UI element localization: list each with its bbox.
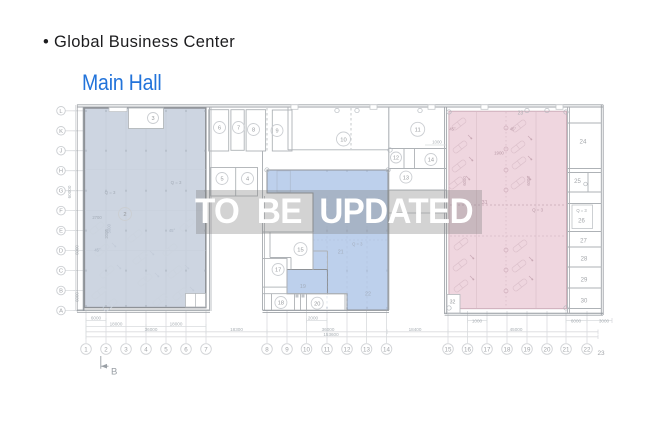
svg-text:8: 8: [252, 128, 255, 134]
svg-text:18: 18: [278, 301, 284, 307]
svg-text:2: 2: [104, 346, 108, 353]
svg-text:3: 3: [124, 346, 128, 353]
svg-text:4: 4: [246, 177, 249, 183]
svg-text:A: A: [59, 309, 63, 315]
svg-text:1: 1: [84, 346, 88, 353]
svg-text:153600: 153600: [323, 332, 339, 337]
svg-text:Q = 3: Q = 3: [105, 190, 116, 195]
svg-text:Q = 3: Q = 3: [352, 241, 363, 246]
svg-text:31: 31: [482, 200, 488, 206]
svg-text:11: 11: [324, 346, 331, 353]
svg-text:36000: 36000: [145, 327, 158, 332]
svg-text:9: 9: [275, 129, 278, 135]
svg-text:20: 20: [544, 346, 551, 353]
svg-text:15: 15: [445, 346, 452, 353]
svg-text:16: 16: [464, 346, 471, 353]
svg-text:26: 26: [578, 219, 585, 225]
svg-text:K: K: [59, 129, 63, 135]
svg-text:9: 9: [285, 346, 289, 353]
svg-text:Q = 3: Q = 3: [532, 208, 543, 213]
svg-text:19: 19: [300, 284, 306, 290]
svg-text:18300: 18300: [230, 327, 243, 332]
svg-text:F: F: [59, 209, 63, 215]
svg-text:24: 24: [580, 139, 587, 146]
svg-text:27: 27: [580, 239, 587, 245]
svg-text:6000: 6000: [91, 315, 102, 320]
svg-text:7: 7: [204, 346, 208, 353]
svg-text:Q = 3: Q = 3: [171, 180, 182, 185]
svg-text:19: 19: [524, 346, 531, 353]
svg-text:B: B: [111, 367, 117, 378]
svg-text:45°: 45°: [169, 228, 176, 233]
svg-text:2: 2: [123, 212, 126, 218]
svg-text:12: 12: [393, 156, 399, 162]
svg-text:13: 13: [363, 346, 370, 353]
svg-text:1900: 1900: [494, 151, 504, 156]
svg-text:5: 5: [220, 177, 223, 183]
svg-text:B: B: [59, 289, 63, 295]
svg-text:21: 21: [338, 250, 344, 256]
svg-text:7: 7: [237, 126, 240, 132]
svg-text:6: 6: [218, 126, 221, 132]
svg-text:29: 29: [581, 278, 588, 284]
svg-text:D: D: [59, 249, 63, 255]
svg-text:60000: 60000: [67, 185, 72, 198]
svg-text:3000: 3000: [599, 319, 610, 324]
svg-text:20: 20: [314, 301, 320, 307]
svg-text:23: 23: [518, 110, 524, 116]
svg-text:10: 10: [303, 346, 310, 353]
svg-text:45°: 45°: [449, 127, 456, 132]
svg-text:12: 12: [344, 346, 351, 353]
svg-text:3: 3: [151, 116, 154, 122]
svg-text:8: 8: [265, 346, 269, 353]
svg-text:11: 11: [415, 128, 421, 134]
svg-text:6: 6: [184, 346, 188, 353]
svg-text:6000: 6000: [526, 176, 531, 186]
svg-text:2000: 2000: [104, 229, 109, 239]
svg-text:5: 5: [164, 346, 168, 353]
svg-text:21: 21: [563, 346, 570, 353]
svg-text:45°: 45°: [510, 127, 517, 132]
svg-text:15: 15: [297, 247, 303, 253]
svg-text:J: J: [60, 149, 63, 155]
svg-text:32: 32: [450, 300, 456, 306]
svg-text:18: 18: [504, 346, 511, 353]
svg-text:18000: 18000: [110, 322, 123, 327]
svg-text:10: 10: [340, 137, 346, 143]
svg-text:14: 14: [428, 158, 434, 164]
svg-text:6000: 6000: [462, 176, 467, 186]
svg-text:H: H: [59, 169, 63, 175]
svg-text:Q = 3: Q = 3: [576, 208, 587, 213]
svg-text:13: 13: [403, 175, 409, 181]
svg-text:28: 28: [581, 257, 588, 263]
svg-text:45000: 45000: [510, 327, 523, 332]
svg-text:E: E: [59, 229, 63, 235]
svg-text:C: C: [59, 269, 63, 275]
svg-text:30: 30: [581, 299, 588, 305]
svg-text:6000: 6000: [571, 319, 582, 324]
svg-text:18400: 18400: [409, 327, 422, 332]
svg-text:14: 14: [383, 346, 390, 353]
svg-text:1000: 1000: [472, 319, 483, 324]
svg-text:45°: 45°: [94, 248, 101, 253]
svg-text:18000: 18000: [170, 322, 183, 327]
svg-text:2000: 2000: [308, 315, 319, 320]
svg-text:G: G: [59, 189, 64, 195]
svg-text:2700: 2700: [92, 215, 102, 220]
svg-text:17: 17: [275, 268, 281, 274]
svg-text:22: 22: [584, 346, 591, 353]
svg-text:23: 23: [597, 350, 605, 357]
svg-text:25: 25: [574, 179, 581, 185]
svg-text:4: 4: [144, 346, 148, 353]
svg-text:22: 22: [365, 292, 371, 298]
svg-text:1000: 1000: [432, 140, 442, 145]
svg-text:17: 17: [484, 346, 491, 353]
